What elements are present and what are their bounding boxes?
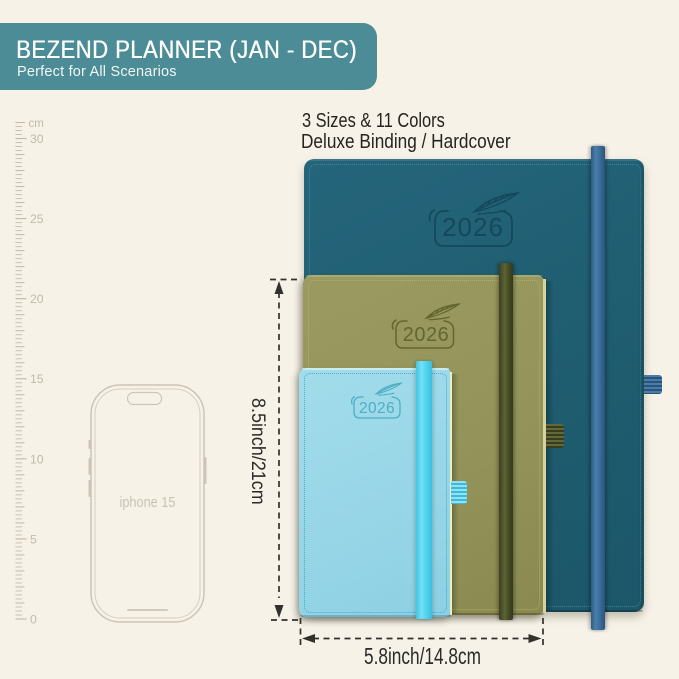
svg-text:10: 10	[30, 452, 44, 466]
svg-text:iphone 15: iphone 15	[120, 493, 176, 510]
svg-text:5: 5	[30, 532, 37, 546]
svg-text:2026: 2026	[359, 400, 395, 417]
svg-text:30: 30	[30, 132, 44, 146]
svg-text:2026: 2026	[403, 324, 450, 346]
svg-text:25: 25	[30, 212, 44, 226]
svg-text:cm: cm	[29, 118, 44, 130]
svg-text:15: 15	[30, 372, 44, 386]
svg-text:2026: 2026	[442, 212, 504, 242]
svg-text:0: 0	[30, 612, 37, 626]
svg-text:20: 20	[30, 292, 44, 306]
